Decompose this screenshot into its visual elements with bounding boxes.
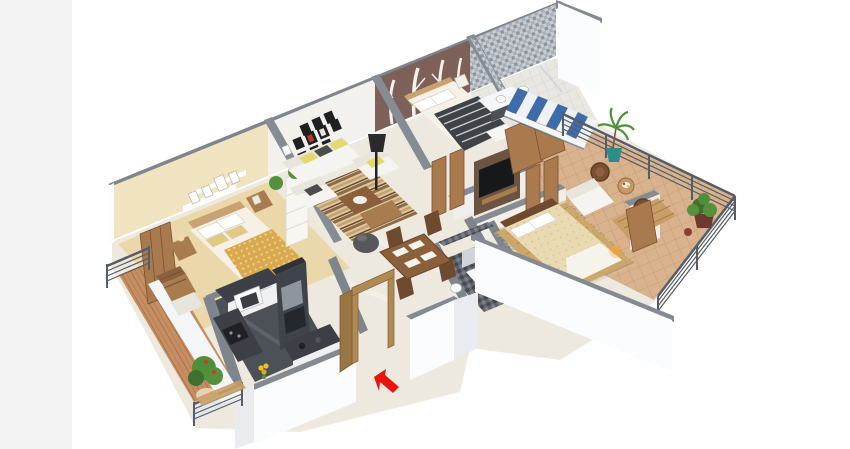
bath-block-side (454, 292, 478, 360)
floor-plan-render (0, 0, 850, 449)
left-corner-wall (108, 183, 114, 246)
jar (315, 337, 320, 342)
bathroom2-toilet (451, 284, 462, 293)
coffee-table-tray (353, 196, 367, 204)
lamp-left (178, 235, 185, 242)
red-pot (684, 228, 692, 236)
floor-lamp-shade (368, 134, 386, 152)
isometric-scene (0, 0, 850, 449)
plant-living (269, 176, 283, 190)
washbasin (496, 96, 506, 103)
floor-lamp-pole (375, 148, 378, 190)
kettle (299, 343, 305, 349)
entrance-door-panel (340, 290, 352, 372)
